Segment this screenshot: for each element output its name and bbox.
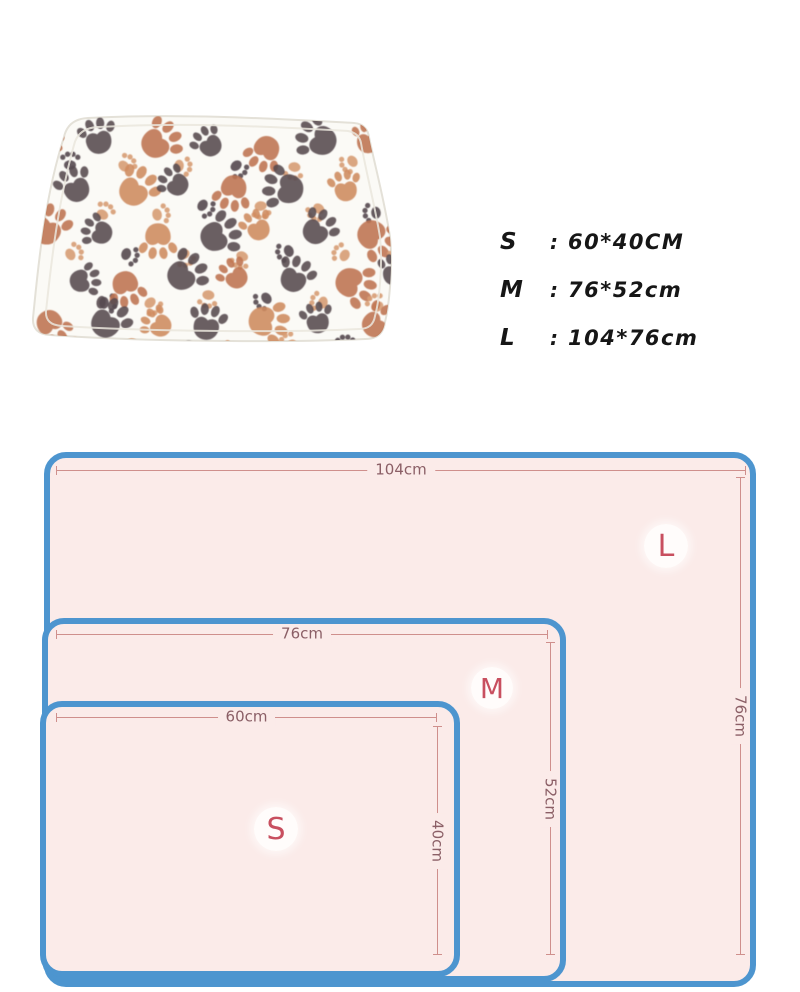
size-value: 60*40CM	[568, 230, 698, 254]
size-badge-s: S	[254, 807, 298, 851]
dimension-label: 76cm	[731, 688, 750, 744]
size-letter: M	[500, 277, 540, 303]
product-photo-blanket	[14, 110, 404, 355]
dimension-label: 76cm	[273, 625, 331, 644]
size-list-item-m: M : 76*52cm	[500, 277, 698, 301]
size-list: S : 60*40CM M : 76*52cm L : 104*76cm	[500, 229, 698, 373]
size-rect-s	[40, 701, 460, 977]
size-letter: S	[500, 229, 540, 255]
size-value: 76*52cm	[568, 278, 698, 302]
dimension-label: 52cm	[541, 771, 560, 827]
size-separator: :	[540, 326, 568, 350]
size-list-item-l: L : 104*76cm	[500, 325, 698, 349]
size-separator: :	[540, 230, 568, 254]
dimension-label: 60cm	[218, 708, 276, 727]
size-value: 104*76cm	[568, 326, 698, 350]
size-badge-l: L	[644, 524, 688, 568]
size-badge-m: M	[471, 667, 513, 709]
size-letter: L	[500, 325, 540, 351]
size-separator: :	[540, 278, 568, 302]
dimension-label: 40cm	[428, 813, 447, 869]
product-size-chart-image: S : 60*40CM M : 76*52cm L : 104*76cm 104…	[0, 0, 800, 992]
size-list-item-s: S : 60*40CM	[500, 229, 698, 253]
dimension-label: 104cm	[367, 461, 435, 480]
